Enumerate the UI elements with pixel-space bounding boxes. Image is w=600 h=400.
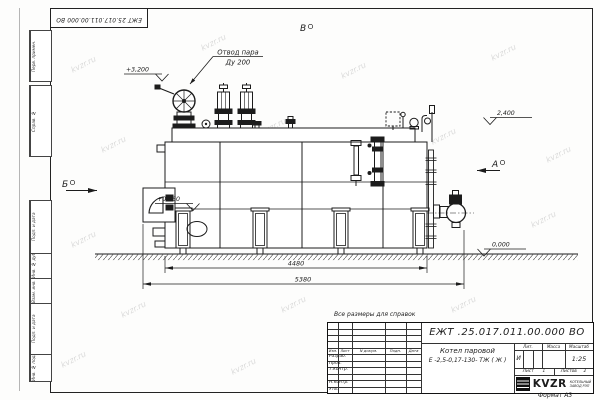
sheet-cell: Лист 1 bbox=[514, 368, 554, 375]
reference-note: Все размеры для справок bbox=[334, 311, 415, 318]
drawing-sheet: { "page": { "watermark": "kvzr.ru", "for… bbox=[0, 0, 600, 400]
scale-value: 1:25 bbox=[565, 350, 593, 368]
margin-box-blank bbox=[40, 201, 51, 253]
margin-box-label: Взам. инв. № bbox=[30, 279, 40, 303]
margin-box-blank bbox=[40, 355, 51, 381]
logo-subtext-2: ЗАВОД РЭП bbox=[570, 384, 591, 388]
lit-value: И bbox=[514, 350, 523, 368]
manufacturer-logo: KVZR КОТЕЛЬНЫЙ ЗАВОД РЭП bbox=[514, 375, 593, 393]
margin-box-perv-primen: Перв. примен. bbox=[29, 30, 52, 82]
row-utv: Утв. bbox=[329, 387, 352, 394]
margin-box-blank bbox=[40, 279, 51, 303]
sheets-value: 2 bbox=[584, 368, 587, 375]
sheet-edge-line bbox=[19, 8, 20, 391]
title-block: ЕЖТ .25.017.011.00.000 ВО Изм. Лист N до… bbox=[327, 322, 594, 394]
margin-box-inv-podl: Инв. № подл. bbox=[29, 354, 52, 382]
margin-box-label: Справ. № bbox=[30, 86, 40, 156]
mass-label: Масса bbox=[542, 343, 565, 350]
margin-box-label: Подп. и дата bbox=[30, 201, 40, 253]
product-title-line1: Котел паровой bbox=[421, 347, 514, 357]
margin-box-blank bbox=[40, 86, 51, 156]
sheet-value: 1 bbox=[542, 368, 545, 375]
margin-box-podp-data-1: Подп. и дата bbox=[29, 200, 52, 254]
col-dokum: N докум. bbox=[352, 348, 385, 354]
margin-box-blank bbox=[40, 254, 51, 278]
scale-label: Масштаб bbox=[565, 343, 593, 350]
margin-box-podp-data-2: Подп. и дата bbox=[29, 303, 52, 355]
product-title-line2: Е -2,5-0,17-130- ТЖ ( Ж ) bbox=[421, 357, 514, 366]
col-data: Дата bbox=[406, 348, 421, 354]
format-label: Формат А3 bbox=[538, 392, 572, 399]
col-podp: Подп. bbox=[385, 348, 406, 354]
margin-box-label: Подп. и дата bbox=[30, 304, 40, 354]
doc-number: ЕЖТ .25.017.011.00.000 ВО bbox=[421, 323, 593, 343]
corner-stamp: ЕЖТ 25.017.011.00.000 ВО bbox=[50, 8, 148, 28]
margin-box-label: Перв. примен. bbox=[30, 31, 40, 81]
sheet-label: Лист bbox=[523, 368, 534, 375]
margin-box-label: Инв. № подл. bbox=[30, 355, 40, 381]
sheets-cell: Листов 2 bbox=[554, 368, 593, 375]
logo-text: KVZR bbox=[533, 378, 567, 390]
lit-label: Лит. bbox=[514, 343, 542, 350]
margin-box-vzam-inv: Взам. инв. № bbox=[29, 278, 52, 304]
sheets-label: Листов bbox=[561, 368, 577, 375]
kvzr-logo-icon bbox=[516, 377, 530, 391]
margin-box-blank bbox=[40, 304, 51, 354]
margin-box-sprav-no: Справ. № bbox=[29, 85, 52, 157]
margin-box-inv-dubl: Инв. № дубл. bbox=[29, 253, 52, 279]
margin-box-label: Инв. № дубл. bbox=[30, 254, 40, 278]
margin-box-blank bbox=[40, 31, 51, 81]
